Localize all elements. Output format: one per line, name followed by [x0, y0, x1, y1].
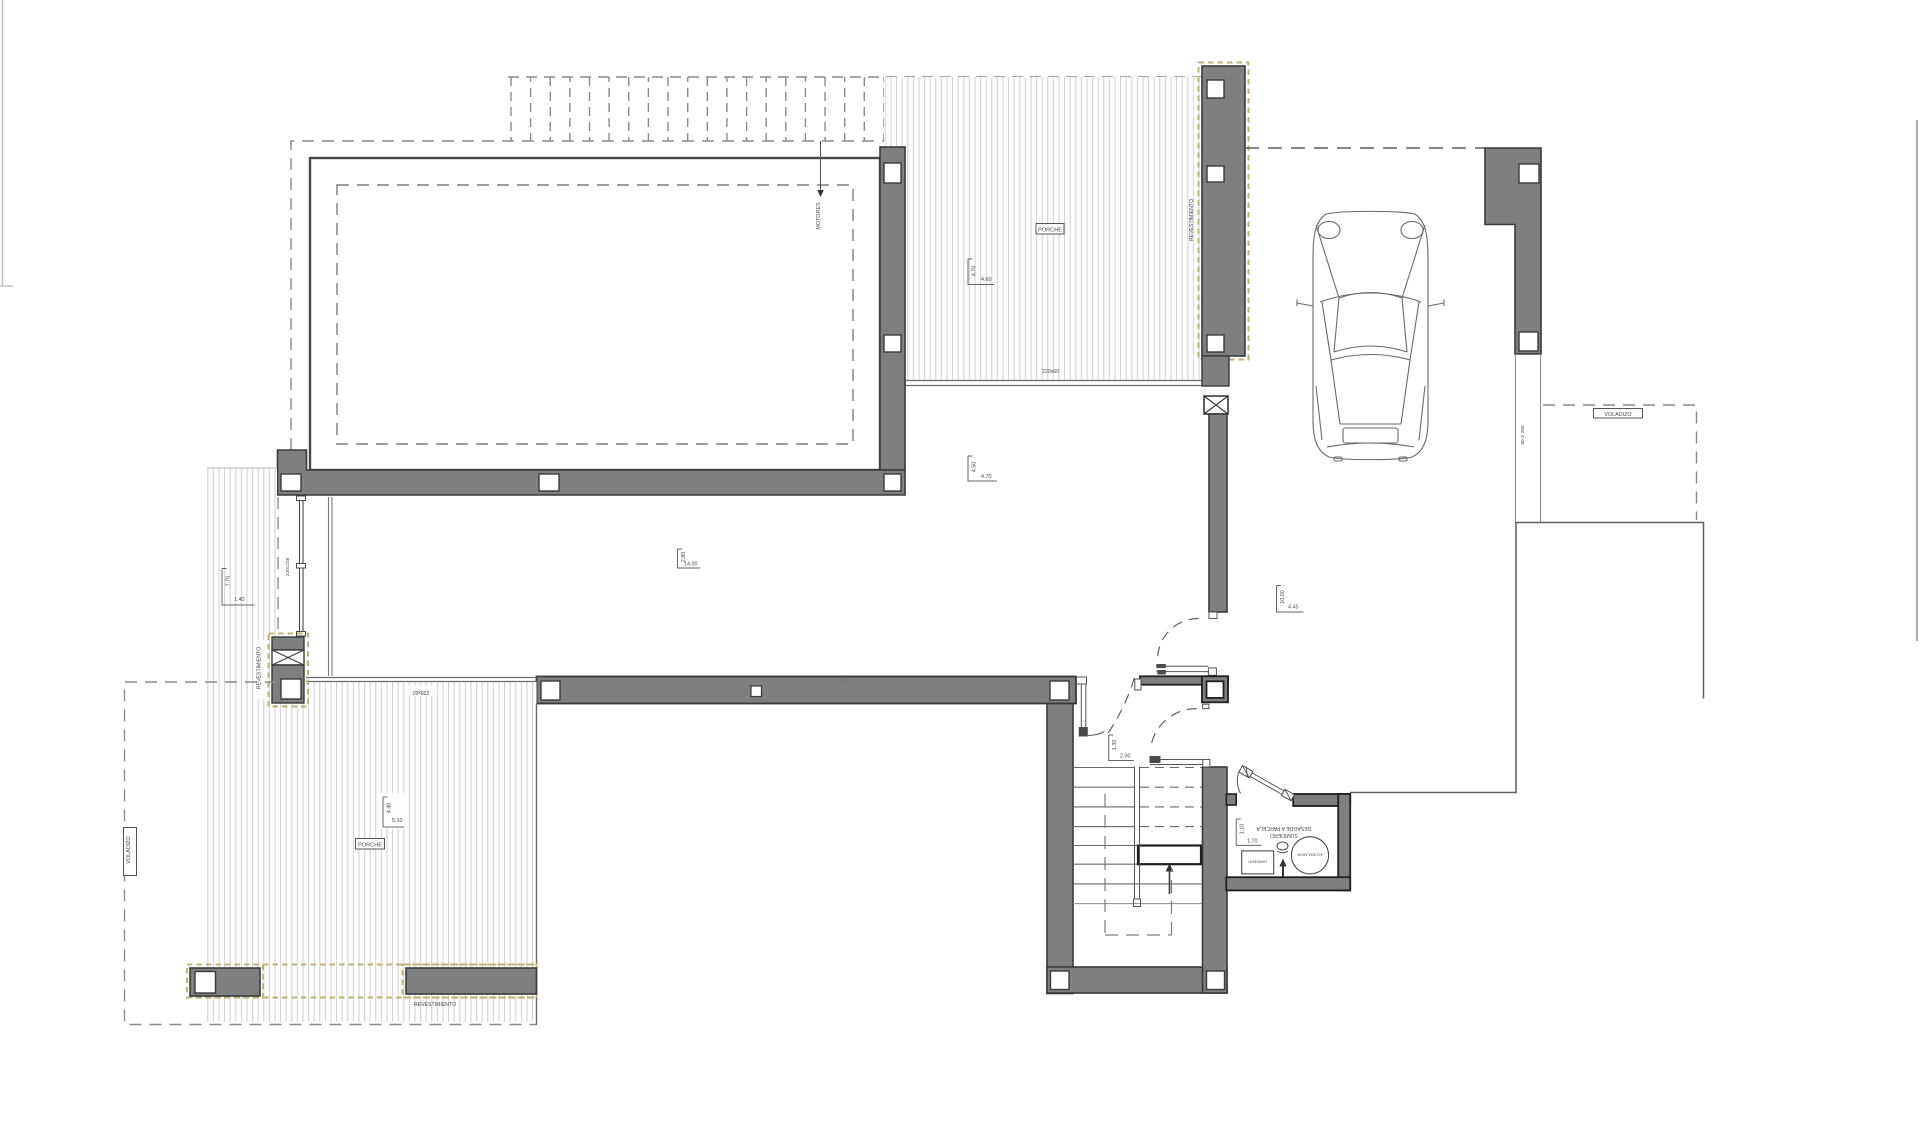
- svg-text:1.40: 1.40: [234, 597, 245, 603]
- svg-text:PORCHE: PORCHE: [358, 843, 382, 849]
- svg-text:VOLADIZO: VOLADIZO: [1604, 412, 1631, 418]
- svg-text:REVESTIMIENTO: REVESTIMIENTO: [1189, 199, 1195, 241]
- svg-text:ACUMULADOR: ACUMULADOR: [1297, 853, 1323, 857]
- svg-text:REVESTIMIENTO: REVESTIMIENTO: [257, 647, 263, 689]
- svg-text:VOLADIZO: VOLADIZO: [126, 836, 132, 863]
- svg-text:4.40: 4.40: [387, 803, 393, 814]
- svg-text:5.10: 5.10: [392, 818, 403, 824]
- svg-text:4.70: 4.70: [972, 266, 978, 277]
- svg-text:4.70: 4.70: [981, 474, 992, 480]
- svg-text:4.45: 4.45: [1288, 605, 1299, 611]
- svg-text:1.10: 1.10: [1240, 824, 1246, 835]
- svg-text:228x60: 228x60: [413, 689, 430, 695]
- svg-text:220x228: 220x228: [285, 557, 291, 576]
- svg-text:MOTORES: MOTORES: [816, 202, 822, 230]
- svg-text:220x60: 220x60: [1042, 369, 1059, 375]
- svg-text:1.70: 1.70: [1247, 838, 1258, 844]
- svg-text:4.50: 4.50: [972, 462, 978, 473]
- svg-text:2.00: 2.00: [1120, 754, 1131, 760]
- svg-text:DESAGÜE A PARCELA: DESAGÜE A PARCELA: [1256, 825, 1312, 832]
- svg-text:REVESTIMIENTO: REVESTIMIENTO: [414, 1002, 456, 1008]
- svg-text:80 X 250: 80 X 250: [1520, 425, 1526, 445]
- svg-text:SUMIDERO: SUMIDERO: [1270, 832, 1298, 838]
- svg-text:14.00: 14.00: [684, 562, 698, 568]
- svg-text:1.30: 1.30: [1112, 740, 1118, 751]
- svg-text:7.70: 7.70: [226, 576, 232, 587]
- svg-text:LAVADERO: LAVADERO: [1248, 859, 1267, 863]
- svg-text:10.00: 10.00: [1280, 590, 1286, 604]
- svg-text:4.60: 4.60: [981, 277, 992, 283]
- svg-text:PORCHE: PORCHE: [1038, 228, 1062, 234]
